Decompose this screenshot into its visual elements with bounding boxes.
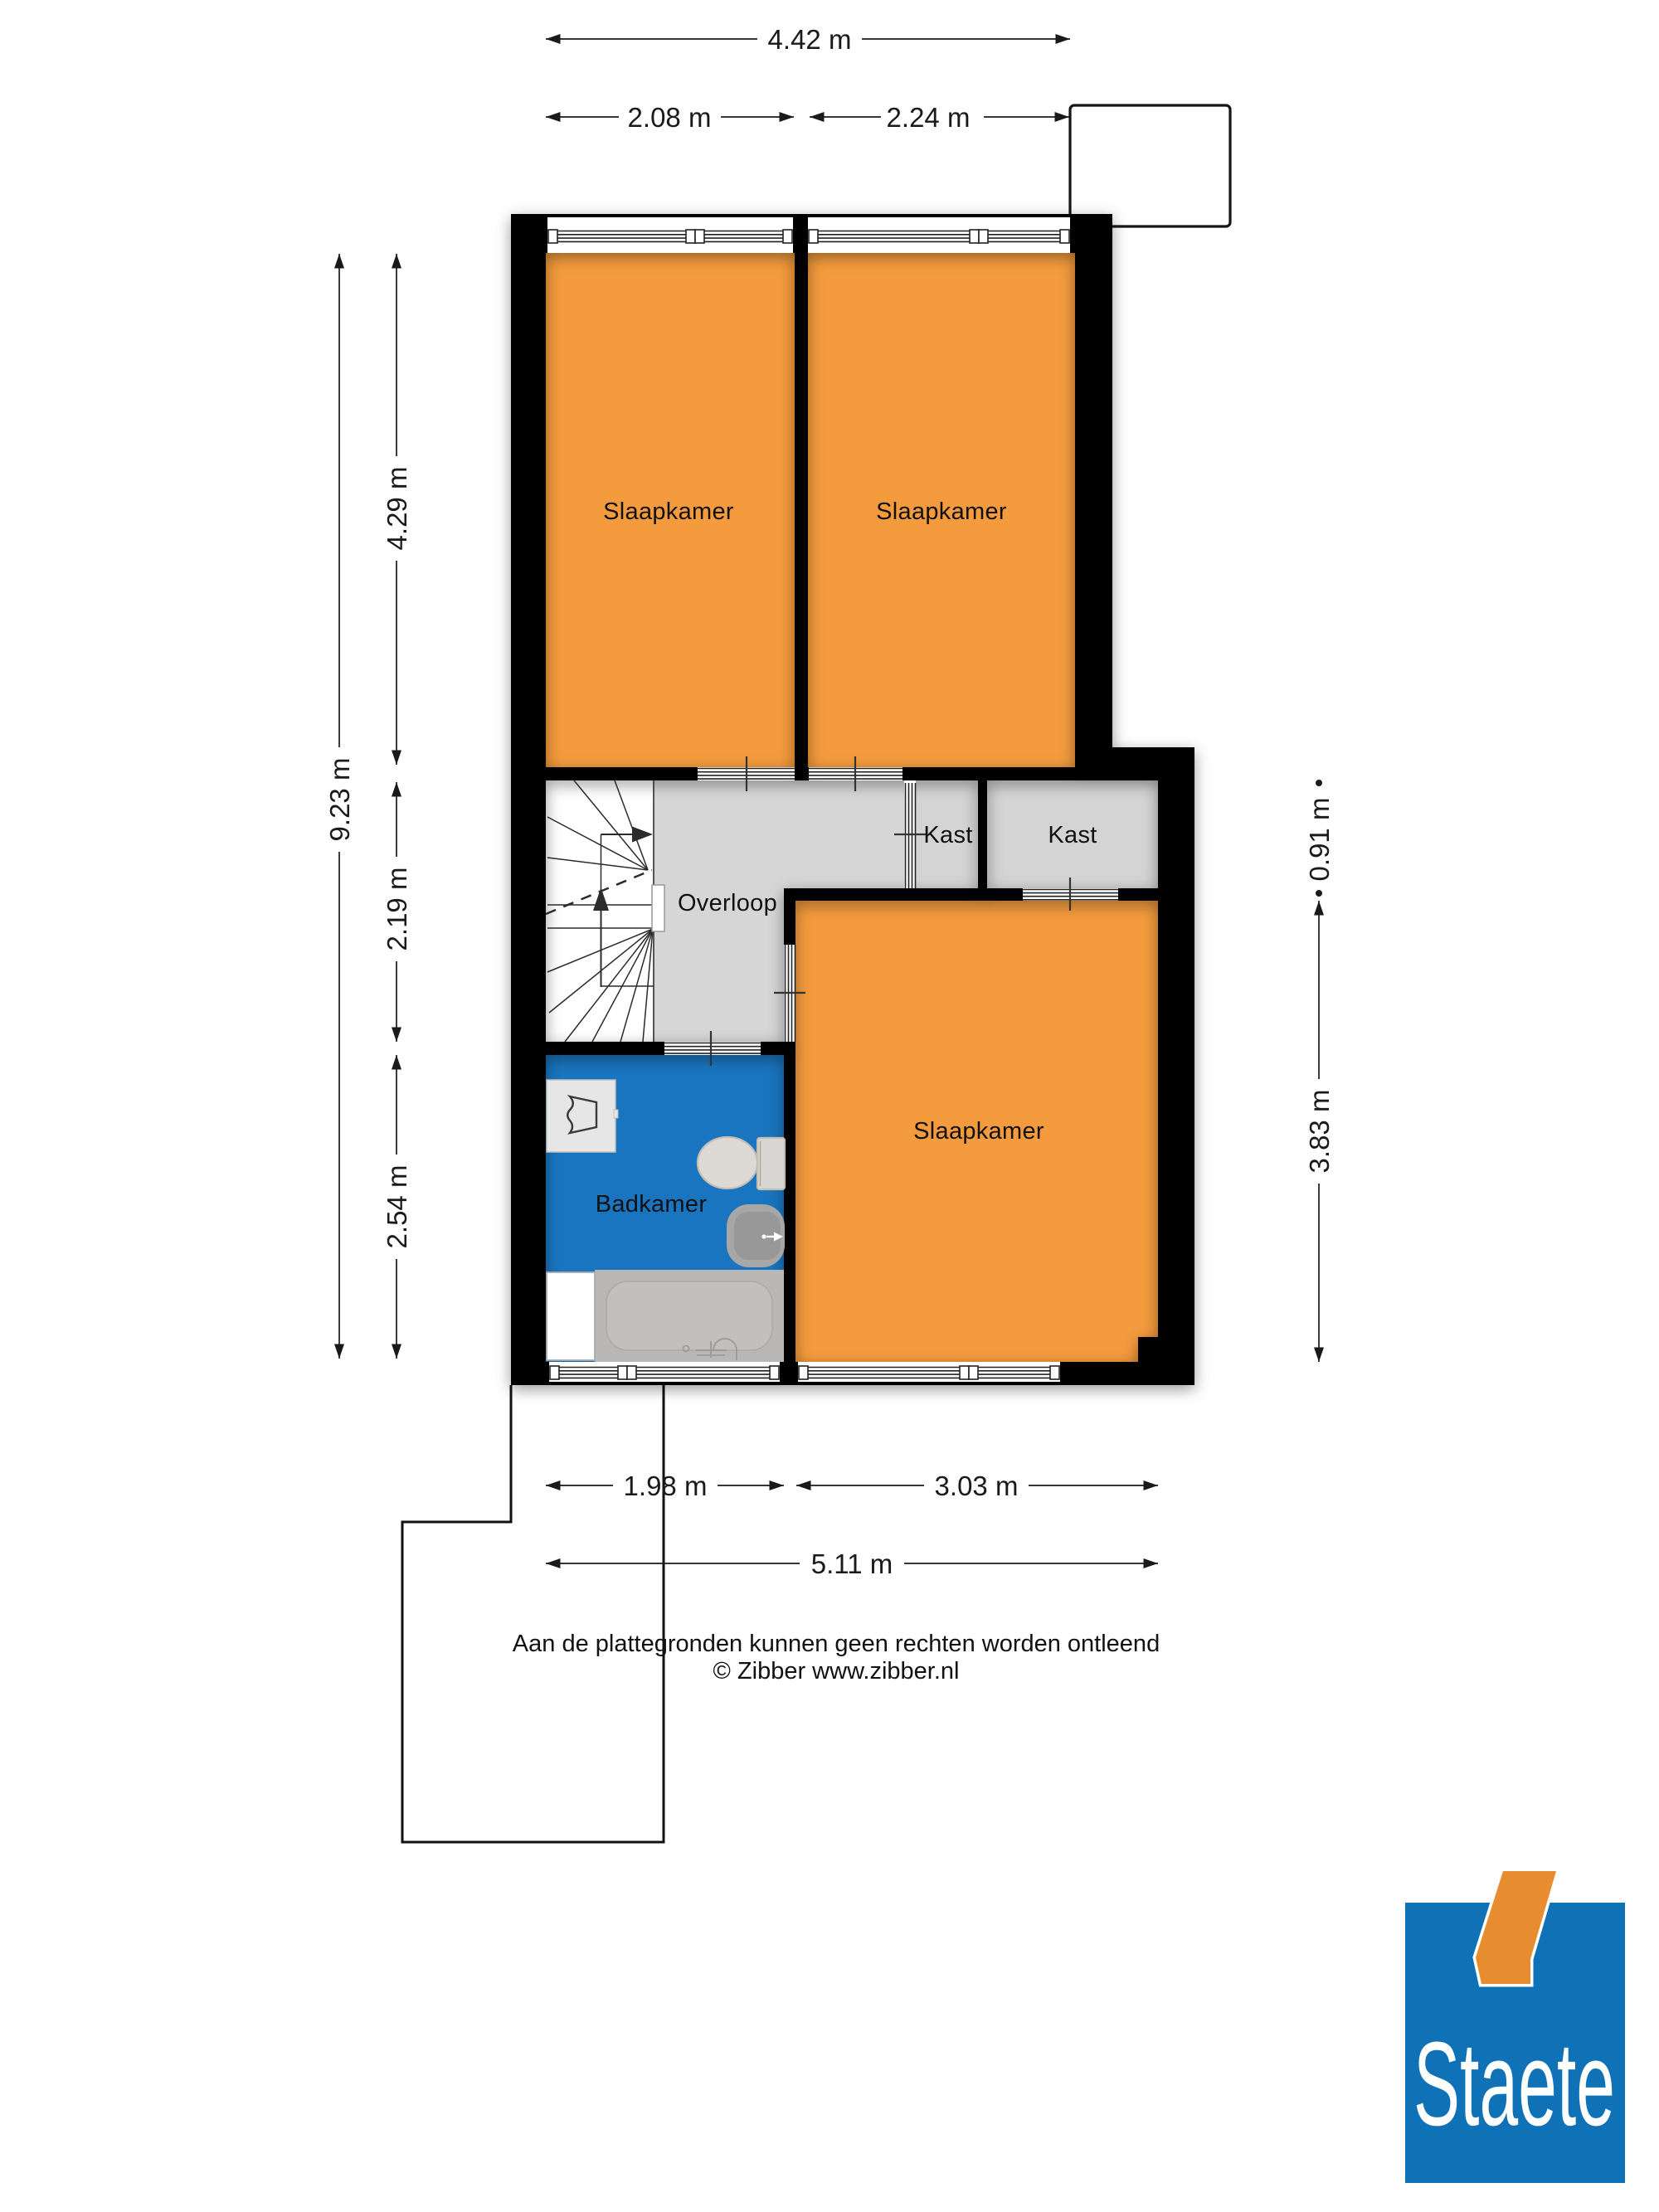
svg-text:Badkamer: Badkamer <box>596 1191 708 1218</box>
svg-text:4.42 m: 4.42 m <box>768 24 852 55</box>
svg-text:Kast: Kast <box>923 822 972 848</box>
svg-text:Slaapkamer: Slaapkamer <box>603 498 734 525</box>
svg-text:2.19 m: 2.19 m <box>382 868 412 951</box>
svg-text:1.98 m: 1.98 m <box>624 1471 708 1501</box>
svg-text:Kast: Kast <box>1048 822 1097 848</box>
svg-text:2.24 m: 2.24 m <box>887 102 971 133</box>
svg-text:0.91 m: 0.91 m <box>1304 798 1335 882</box>
svg-text:2.54 m: 2.54 m <box>382 1165 412 1249</box>
svg-text:Staete: Staete <box>1413 2017 1615 2151</box>
svg-text:2.08 m: 2.08 m <box>628 102 712 133</box>
svg-text:Aan de plattegronden kunnen ge: Aan de plattegronden kunnen geen rechten… <box>513 1631 1160 1657</box>
svg-text:Slaapkamer: Slaapkamer <box>876 498 1007 525</box>
svg-text:© Zibber www.zibber.nl: © Zibber www.zibber.nl <box>713 1658 960 1685</box>
svg-text:4.29 m: 4.29 m <box>382 467 412 551</box>
svg-text:9.23 m: 9.23 m <box>324 758 355 842</box>
svg-text:Overloop: Overloop <box>678 890 777 916</box>
svg-text:3.83 m: 3.83 m <box>1304 1090 1335 1174</box>
svg-text:Slaapkamer: Slaapkamer <box>913 1118 1044 1145</box>
svg-text:5.11 m: 5.11 m <box>811 1548 893 1579</box>
svg-text:3.03 m: 3.03 m <box>935 1471 1019 1501</box>
